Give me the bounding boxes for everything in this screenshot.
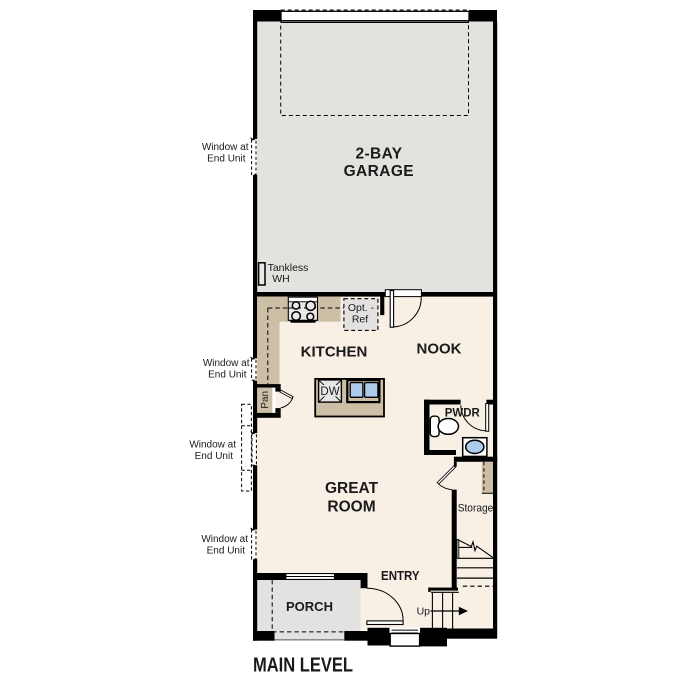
svg-text:Opt. -: Opt. - bbox=[348, 302, 375, 314]
svg-text:GARAGE: GARAGE bbox=[344, 163, 414, 180]
svg-text:ENTRY: ENTRY bbox=[381, 568, 420, 583]
svg-text:Storage: Storage bbox=[458, 502, 494, 514]
svg-text:ROOM: ROOM bbox=[327, 499, 375, 516]
svg-text:WH: WH bbox=[272, 273, 290, 285]
svg-text:PORCH: PORCH bbox=[286, 599, 333, 614]
svg-text:2-BAY: 2-BAY bbox=[355, 145, 402, 162]
svg-text:PWDR: PWDR bbox=[445, 407, 481, 419]
svg-text:GREAT: GREAT bbox=[325, 480, 379, 497]
svg-text:End Unit: End Unit bbox=[208, 370, 247, 381]
svg-text:Window at: Window at bbox=[201, 534, 248, 545]
svg-text:Pan: Pan bbox=[260, 391, 271, 409]
svg-text:MAIN LEVEL: MAIN LEVEL bbox=[253, 654, 353, 677]
svg-text:Tankless: Tankless bbox=[268, 262, 309, 274]
svg-text:NOOK: NOOK bbox=[417, 340, 462, 357]
svg-text:End Unit: End Unit bbox=[207, 154, 246, 165]
svg-text:End Unit: End Unit bbox=[195, 451, 234, 462]
svg-text:KITCHEN: KITCHEN bbox=[301, 344, 368, 361]
svg-text:Up: Up bbox=[417, 606, 431, 618]
svg-text:Ref: Ref bbox=[352, 313, 368, 325]
svg-text:Window at: Window at bbox=[189, 440, 236, 451]
svg-text:End Unit: End Unit bbox=[207, 545, 246, 556]
svg-text:Window at: Window at bbox=[203, 358, 250, 369]
svg-text:Window at: Window at bbox=[202, 142, 249, 153]
svg-text:DW: DW bbox=[320, 386, 339, 398]
